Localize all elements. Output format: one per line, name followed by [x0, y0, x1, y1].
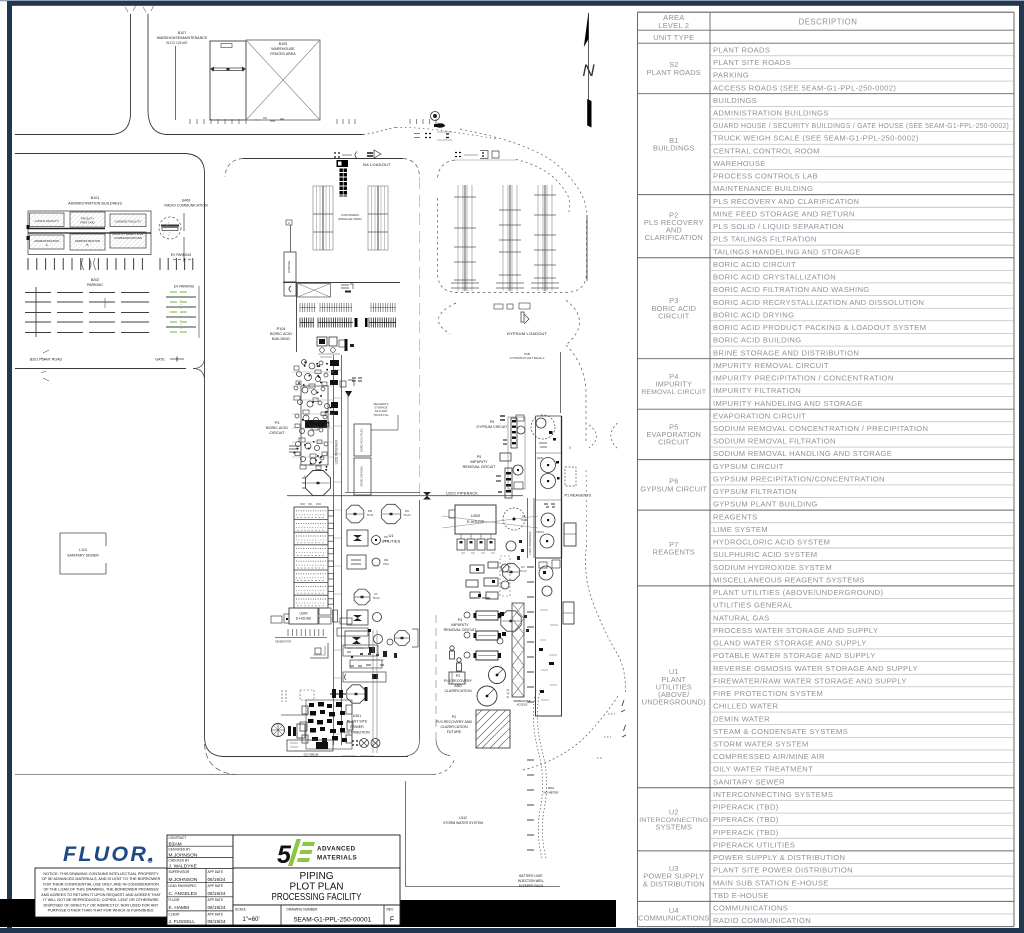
svg-text:PROCESS CONTROLS LAB: PROCESS CONTROLS LAB [713, 172, 818, 181]
svg-text:K. HAMM: K. HAMM [169, 905, 190, 911]
svg-text:BUILDING: BUILDING [272, 337, 290, 341]
svg-text:P4: P4 [458, 618, 462, 622]
svg-text:FLUOR: FLUOR [169, 898, 181, 902]
svg-text:06/19/24: 06/19/24 [208, 891, 226, 896]
svg-text:WAREHOUSE: WAREHOUSE [713, 159, 766, 168]
svg-text:ADMINISTRATION BUILDINGS: ADMINISTRATION BUILDINGS [713, 109, 829, 118]
svg-text:SLEEPER RACK: SLEEPER RACK [519, 884, 544, 888]
svg-text:SILO AND: SILO AND [375, 409, 387, 413]
svg-text:PLOT PLAN: PLOT PLAN [290, 882, 344, 893]
svg-text:U300: U300 [299, 612, 307, 616]
svg-text:5EAM-G1-PPL-250-00001: 5EAM-G1-PPL-250-00001 [294, 917, 372, 924]
svg-text:CIRCUIT: CIRCUIT [269, 431, 285, 435]
svg-text:GYPSUM FILTRATION: GYPSUM FILTRATION [713, 487, 797, 496]
svg-text:GY: GY [522, 514, 526, 518]
svg-text:NOTICE: THIS DRAWING CONTAINS: NOTICE: THIS DRAWING CONTAINS INTELLECTU… [43, 872, 159, 876]
svg-text:U201 PIPERACK: U201 PIPERACK [528, 531, 532, 554]
svg-text:FIRE PROTECTION SYSTEM: FIRE PROTECTION SYSTEM [713, 689, 823, 698]
svg-text:GC-4261M: GC-4261M [304, 753, 319, 757]
svg-text:ADMINISTRATION BUILDINGS: ADMINISTRATION BUILDINGS [68, 202, 122, 206]
svg-text:UTILITIES GENERAL: UTILITIES GENERAL [713, 601, 793, 610]
svg-text:IT WILL NOT BE REPRODUCED, COP: IT WILL NOT BE REPRODUCED, COPIED, LENT … [43, 898, 159, 902]
svg-text:TK-11: TK-11 [521, 518, 528, 522]
svg-text:APP DATE: APP DATE [208, 912, 223, 916]
svg-text:STEAM & CONDENSATE SYSTEMS: STEAM & CONDENSATE SYSTEMS [713, 727, 848, 736]
svg-text:U112: U112 [459, 816, 467, 820]
svg-text:HYDROCLORIC ACID SYSTEM: HYDROCLORIC ACID SYSTEM [713, 538, 830, 547]
svg-text:FUTURE: FUTURE [447, 730, 462, 734]
svg-text:B101: B101 [91, 196, 100, 200]
svg-text:PLANT SITE POWER DISTRIBUTION: PLANT SITE POWER DISTRIBUTION [713, 866, 853, 875]
svg-text:TK-04: TK-04 [372, 596, 380, 600]
svg-text:PIPING: PIPING [300, 871, 334, 882]
svg-text:SCALE: SCALE [235, 908, 247, 912]
svg-text:IMPURITY FILTRATION: IMPURITY FILTRATION [713, 386, 801, 395]
svg-text:POWER: POWER [350, 725, 364, 729]
svg-text:U2: U2 [669, 807, 679, 816]
svg-text:IMPURITY PRECIPITATION / CONCE: IMPURITY PRECIPITATION / CONCENTRATION [713, 374, 894, 383]
svg-text:U202 PIPERACK: U202 PIPERACK [446, 491, 478, 495]
svg-text:A: A [46, 243, 48, 247]
svg-text:CIRCUIT: CIRCUIT [658, 438, 690, 447]
svg-text:06/19/24: 06/19/24 [208, 919, 226, 924]
svg-text:PLS RECOVERY AND CLARIFICATION: PLS RECOVERY AND CLARIFICATION [713, 197, 859, 206]
svg-text:ACCESS ROADS (SEE 5EAM-G1-PPL-: ACCESS ROADS (SEE 5EAM-G1-PPL-250-0002) [713, 83, 896, 92]
svg-text:REMOVAL CIRCUIT: REMOVAL CIRCUIT [641, 389, 706, 396]
svg-text:B: B [86, 243, 88, 247]
svg-text:PARKING: PARKING [87, 283, 103, 287]
svg-text:SODIUM HYDROXIDE SYSTEM: SODIUM HYDROXIDE SYSTEM [713, 563, 832, 572]
svg-text:REMOVAL CIRCUIT: REMOVAL CIRCUIT [444, 628, 478, 632]
svg-text:P5: P5 [477, 455, 481, 459]
svg-text:H2SO4: H2SO4 [536, 532, 544, 534]
svg-text:EV PARKING: EV PARKING [174, 285, 195, 289]
svg-text:C. ANGELES: C. ANGELES [169, 891, 198, 897]
svg-text:& DISTRIBUTION: & DISTRIBUTION [643, 879, 705, 888]
svg-text:BUILDINGS: BUILDINGS [653, 144, 695, 153]
svg-text:NATURAL GAS: NATURAL GAS [713, 613, 770, 622]
svg-text:MISCELLANEOUS REAGENT SYSTEMS: MISCELLANEOUS REAGENT SYSTEMS [713, 575, 865, 584]
svg-text:MAIN SUB STATION E-HOUSE: MAIN SUB STATION E-HOUSE [713, 878, 829, 887]
svg-text:SODIUM REMOVAL CONCENTRATION /: SODIUM REMOVAL CONCENTRATION / PRECIPITA… [713, 424, 928, 433]
svg-text:LIME SYSTEM: LIME SYSTEM [713, 525, 768, 534]
svg-text:BATTERY LIMIT: BATTERY LIMIT [519, 874, 542, 878]
svg-text:P1 REAGENTS: P1 REAGENTS [565, 494, 592, 498]
svg-text:FW: FW [405, 509, 410, 513]
svg-text:PIPERACK UTILITIES: PIPERACK UTILITIES [713, 840, 795, 849]
svg-text:BORIC ACID BUILDING: BORIC ACID BUILDING [713, 336, 802, 345]
svg-text:P3: P3 [275, 421, 280, 425]
svg-text:STORM WATER SYSTEM: STORM WATER SYSTEM [713, 740, 809, 749]
svg-text:IMPURITY: IMPURITY [451, 623, 469, 627]
svg-text:IMPURITY: IMPURITY [655, 380, 692, 389]
svg-text:PIPERACK (TBD): PIPERACK (TBD) [713, 815, 779, 824]
svg-text:APP DATE: APP DATE [208, 870, 223, 874]
svg-text:EV PARKING: EV PARKING [171, 253, 192, 257]
svg-text:BORIC ACID FILTRATION AND WASH: BORIC ACID FILTRATION AND WASHING [713, 285, 870, 294]
svg-text:DEMIN WATER: DEMIN WATER [713, 714, 770, 723]
svg-text:DW: DW [384, 558, 389, 562]
svg-text:PKG: PKG [383, 562, 388, 566]
svg-text:SULPHURIC ACID SYSTEM: SULPHURIC ACID SYSTEM [713, 550, 817, 559]
svg-text:PLS TAILINGS FILTRATION: PLS TAILINGS FILTRATION [713, 235, 817, 244]
svg-text:FLUOR.: FLUOR. [63, 842, 156, 866]
svg-text:U301: U301 [353, 714, 362, 718]
svg-text:B107: B107 [178, 31, 186, 35]
svg-text:CHANGE FACILITY: CHANGE FACILITY [115, 219, 142, 223]
svg-text:U303: U303 [471, 514, 480, 518]
svg-text:GUARD HOUSE / SECURITY BUILDIN: GUARD HOUSE / SECURITY BUILDINGS / GATE … [713, 121, 1009, 130]
svg-text:POTABLE WATER STORAGE AND SUPP: POTABLE WATER STORAGE AND SUPPLY [713, 651, 876, 660]
svg-text:LEVEL 2: LEVEL 2 [658, 21, 689, 30]
svg-text:GATE: GATE [155, 358, 165, 362]
svg-text:BORIC ACID RECRYSTALLIZATION A: BORIC ACID RECRYSTALLIZATION AND DISSOLU… [713, 298, 924, 307]
svg-text:WAREHOUSE/MAINTENANCE: WAREHOUSE/MAINTENANCE [157, 36, 208, 40]
svg-text:LEAD ENGR/SPEC.: LEAD ENGR/SPEC. [169, 884, 198, 888]
svg-text:NO METER: NO METER [544, 791, 559, 795]
svg-text:BORIC ACID PRODUCT PACKING & L: BORIC ACID PRODUCT PACKING & LOADOUT SYS… [713, 323, 926, 332]
svg-text:GENERATOR: GENERATOR [275, 640, 291, 644]
svg-text:PLANT UTILITIES (ABOVE/UNDERGR: PLANT UTILITIES (ABOVE/UNDERGROUND) [713, 588, 883, 597]
svg-text:CHILLED WATER: CHILLED WATER [713, 702, 778, 711]
svg-text:CHECKED BY: CHECKED BY [169, 859, 191, 863]
svg-text:(PARALLEL PARK): (PARALLEL PARK) [338, 217, 362, 221]
svg-text:ACCESS: ACCESS [517, 703, 528, 707]
svg-text:OF THE LOAN OF THIS DRAWING, T: OF THE LOAN OF THIS DRAWING, THE BORROWE… [43, 888, 159, 892]
svg-text:MINE FEED STORAGE AND RETURN: MINE FEED STORAGE AND RETURN [713, 209, 855, 218]
svg-text:DISPOSED OF DIRECTLY OR INDIRE: DISPOSED OF DIRECTLY OR INDIRECTLY, NOR … [44, 903, 159, 907]
svg-text:B202: B202 [91, 278, 99, 282]
svg-text:LOADING: LOADING [287, 261, 291, 274]
svg-text:R: R [149, 860, 151, 863]
svg-text:PLS RECOVERY AND: PLS RECOVERY AND [436, 720, 473, 724]
svg-text:BORIC ACID CRYSTALLIZATION: BORIC ACID CRYSTALLIZATION [713, 273, 836, 282]
svg-text:GY: GY [521, 565, 525, 569]
svg-text:CENTRAL CONTROL ROOM: CENTRAL CONTROL ROOM [713, 146, 820, 155]
svg-text:GYPSUM PRECIPITATION/CONCENTRA: GYPSUM PRECIPITATION/CONCENTRATION [713, 474, 885, 483]
svg-text:BORIC ACID CIRCUIT: BORIC ACID CIRCUIT [713, 260, 796, 269]
svg-text:PLS RECOVERY: PLS RECOVERY [444, 679, 472, 683]
svg-text:PURPOSE OTHER THAN THAT FOR WH: PURPOSE OTHER THAN THAT FOR WHICH IS FUR… [48, 909, 155, 913]
svg-text:BORIC ACID DRYING: BORIC ACID DRYING [713, 310, 794, 319]
svg-text:STORM WATER SYSTEM: STORM WATER SYSTEM [443, 821, 483, 825]
svg-text:INJECTION WELL: INJECTION WELL [518, 879, 545, 883]
svg-text:BLDG 125'x65': BLDG 125'x65' [166, 41, 188, 45]
svg-text:GLAND WATER STORAGE AND SUPPLY: GLAND WATER STORAGE AND SUPPLY [713, 639, 867, 648]
svg-text:POWER SUPPLY & DISTRIBUTION: POWER SUPPLY & DISTRIBUTION [713, 853, 845, 862]
svg-text:PIPERACK (TBD): PIPERACK (TBD) [713, 803, 779, 812]
svg-text:REAGENTS: REAGENTS [653, 547, 695, 556]
svg-text:B105: B105 [279, 42, 287, 46]
svg-text:PLANT ROADS: PLANT ROADS [647, 68, 701, 77]
svg-text:SANITARY SEWER: SANITARY SEWER [713, 777, 785, 786]
svg-text:SUPERVISOR: SUPERVISOR [169, 870, 191, 874]
svg-text:BA LOADOUT: BA LOADOUT [363, 162, 391, 167]
svg-text:PLANT SITE ROADS: PLANT SITE ROADS [713, 58, 791, 67]
svg-text:DESCRIPTION: DESCRIPTION [799, 18, 858, 27]
svg-text:UNIT TYPE: UNIT TYPE [653, 33, 694, 42]
svg-text:BORIC ACID: BORIC ACID [266, 426, 288, 430]
svg-text:PLANT SITE: PLANT SITE [347, 720, 368, 724]
svg-text:FENCED AREA: FENCED AREA [270, 52, 296, 56]
svg-text:REAGENTS: REAGENTS [713, 512, 758, 521]
svg-text:CONTRACT: CONTRACT [169, 836, 187, 840]
svg-text:U406: U406 [182, 199, 191, 203]
svg-text:M.JOHNSON: M.JOHNSON [169, 877, 198, 883]
svg-text:PROCESSING FACILITY: PROCESSING FACILITY [272, 892, 362, 903]
svg-text:NaOH: NaOH [537, 458, 544, 460]
svg-text:IMPURITY HANDELING AND STORAGE: IMPURITY HANDELING AND STORAGE [713, 399, 863, 408]
svg-text:ADVANCED: ADVANCED [317, 846, 356, 853]
svg-text:SANITARY SEWER: SANITARY SEWER [67, 554, 99, 558]
svg-text:PLS SOLID / LIQUID SEPARATION: PLS SOLID / LIQUID SEPARATION [713, 222, 844, 231]
svg-text:WAREHOUSE: WAREHOUSE [271, 47, 295, 51]
svg-text:APP DATE: APP DATE [208, 884, 223, 888]
svg-text:STORAGE: STORAGE [374, 406, 387, 410]
svg-text:BRINE STORAGE AND DISTRIBUTION: BRINE STORAGE AND DISTRIBUTION [713, 348, 859, 357]
svg-text:TRUCK FILL: TRUCK FILL [373, 413, 389, 417]
svg-text:GYPSUM CIRCUIT: GYPSUM CIRCUIT [713, 462, 784, 471]
svg-text:PLANT ROADS: PLANT ROADS [713, 45, 770, 54]
svg-text:06/19/24: 06/19/24 [208, 905, 226, 910]
svg-text:OF 5E ADVANCED MATERIALS, AND: OF 5E ADVANCED MATERIALS, AND IS LENT TO… [42, 877, 161, 881]
svg-text:L113: L113 [79, 548, 87, 552]
svg-text:MAINTENANCE BUILDING: MAINTENANCE BUILDING [713, 184, 813, 193]
svg-text:PW: PW [368, 509, 373, 513]
svg-text:AND AGREES TO RETURN IT UPON R: AND AGREES TO RETURN IT UPON REQUEST AND… [41, 893, 161, 897]
svg-text:OILY WATER TREATMENT: OILY WATER TREATMENT [713, 765, 813, 774]
svg-text:IMPURITY REMOVAL CIRCUIT: IMPURITY REMOVAL CIRCUIT [713, 361, 829, 370]
svg-text:P2: P2 [452, 715, 456, 719]
svg-text:E-HOUSE: E-HOUSE [467, 520, 485, 524]
svg-text:BORIC ACID TRUCK: BORIC ACID TRUCK [361, 428, 364, 452]
svg-text:P6: P6 [490, 420, 494, 424]
svg-text:TK-01: TK-01 [366, 513, 374, 517]
svg-text:TK-12: TK-12 [519, 569, 527, 573]
svg-text:DRAWING NUMBER: DRAWING NUMBER [287, 908, 319, 912]
svg-text:COMPRESSED AIR/MINE AIR: COMPRESSED AIR/MINE AIR [713, 752, 825, 761]
svg-text:REV: REV [387, 908, 395, 912]
svg-text:RADIO COMMUNICATION: RADIO COMMUNICATION [164, 204, 208, 208]
svg-text:LUNCH FACILITY: LUNCH FACILITY [35, 219, 59, 223]
svg-text:APP DATE: APP DATE [208, 898, 223, 902]
svg-text:J. FUSSELL: J. FUSSELL [169, 919, 196, 925]
svg-text:CLARIFICATION: CLARIFICATION [645, 233, 703, 242]
svg-text:GYPSUM LOADOUT: GYPSUM LOADOUT [507, 331, 548, 336]
svg-text:U1: U1 [388, 533, 394, 538]
svg-text:GYPSUM CIRCUIT: GYPSUM CIRCUIT [640, 484, 707, 493]
svg-text:IMPURITY: IMPURITY [470, 460, 488, 464]
svg-text:GYPSUM CIRCUIT: GYPSUM CIRCUIT [476, 425, 508, 429]
svg-text:FIREWATER/RAW WATER STORAGE AN: FIREWATER/RAW WATER STORAGE AND SUPPLY [713, 676, 907, 685]
svg-text:EVAPORATION CIRCUIT: EVAPORATION CIRCUIT [713, 411, 806, 420]
svg-text:B201 PLANT ROAD: B201 PLANT ROAD [30, 358, 63, 362]
svg-text:DISTRIBUTION: DISTRIBUTION [344, 731, 370, 735]
svg-text:COMMUNICATIONS: COMMUNICATIONS [638, 913, 709, 922]
svg-text:FOR THEIR CONFIDENTIAL USE ONL: FOR THEIR CONFIDENTIAL USE ONLY, AND IN … [43, 882, 159, 886]
svg-text:BUILDINGS: BUILDINGS [713, 96, 757, 105]
svg-text:GYPSUM PLANT BLDG 2: GYPSUM PLANT BLDG 2 [510, 356, 545, 360]
svg-text:UT: UT [374, 592, 378, 596]
svg-text:PARKING: PARKING [713, 71, 749, 80]
svg-text:PROCESS WATER STORAGE AND SUPP: PROCESS WATER STORAGE AND SUPPLY [713, 626, 878, 635]
svg-text:1"=60': 1"=60' [242, 916, 259, 923]
svg-text:COMMUNICATIONS: COMMUNICATIONS [713, 904, 788, 913]
svg-text:UNDERGROUND): UNDERGROUND) [642, 698, 706, 707]
svg-text:TRUCK WEIGH SCALE (SEE 5EAM-G1: TRUCK WEIGH SCALE (SEE 5EAM-G1-PPL-250-0… [713, 134, 919, 143]
svg-text:SODIUM REMOVAL FILTRATION: SODIUM REMOVAL FILTRATION [713, 437, 836, 446]
svg-text:U203 PIPERACK: U203 PIPERACK [335, 439, 339, 464]
svg-text:FIRST AID: FIRST AID [80, 220, 95, 224]
svg-text:06/19/24: 06/19/24 [208, 877, 226, 882]
svg-text:GYPSUM PLANT BUILDING: GYPSUM PLANT BUILDING [713, 500, 818, 509]
svg-text:CIRCUIT: CIRCUIT [658, 311, 690, 320]
svg-text:MATERIALS: MATERIALS [317, 855, 357, 862]
svg-text:E-HOUSE: E-HOUSE [296, 617, 312, 621]
svg-text:SYSTEMS: SYSTEMS [655, 823, 692, 832]
svg-text:REAGENTS: REAGENTS [374, 402, 389, 406]
svg-text:F: F [390, 917, 394, 924]
svg-text:P2: P2 [456, 674, 460, 678]
svg-text:N: N [582, 61, 595, 80]
svg-text:UTILITIES: UTILITIES [382, 539, 401, 544]
svg-text:REMOVAL CIRCUIT: REMOVAL CIRCUIT [463, 465, 497, 469]
svg-text:AND: AND [454, 684, 462, 688]
svg-text:TK-02: TK-02 [403, 513, 411, 517]
svg-text:P104: P104 [277, 327, 286, 331]
svg-text:CLIENT: CLIENT [169, 912, 180, 916]
svg-text:DESIGNED BY: DESIGNED BY [169, 847, 192, 851]
svg-text:PIPERACK (TBD): PIPERACK (TBD) [713, 828, 779, 837]
svg-text:INTERCONNECTING SYSTEMS: INTERCONNECTING SYSTEMS [713, 790, 833, 799]
svg-text:CLARIFICATION: CLARIFICATION [444, 689, 471, 693]
svg-text:REVERSE OSMOSIS WATER STORAGE: REVERSE OSMOSIS WATER STORAGE AND SUPPLY [713, 664, 918, 673]
svg-text:TAILINGS HANDELING AND STORAGE: TAILINGS HANDELING AND STORAGE [713, 247, 861, 256]
svg-text:RADIO COMMUNICATION: RADIO COMMUNICATION [713, 916, 811, 925]
svg-text:BRINE DISPOSAL: BRINE DISPOSAL [361, 465, 364, 486]
svg-text:COMMUNICATIONS: COMMUNICATIONS [114, 236, 142, 240]
svg-text:SODIUM REMOVAL HANDLING AND ST: SODIUM REMOVAL HANDLING AND STORAGE [713, 449, 892, 458]
svg-text:2501: 2501 [548, 786, 555, 790]
svg-text:BORIC ACID: BORIC ACID [270, 332, 292, 336]
svg-text:CLARIFICATION: CLARIFICATION [440, 725, 467, 729]
svg-text:TBD E-HOUSE: TBD E-HOUSE [713, 891, 769, 900]
